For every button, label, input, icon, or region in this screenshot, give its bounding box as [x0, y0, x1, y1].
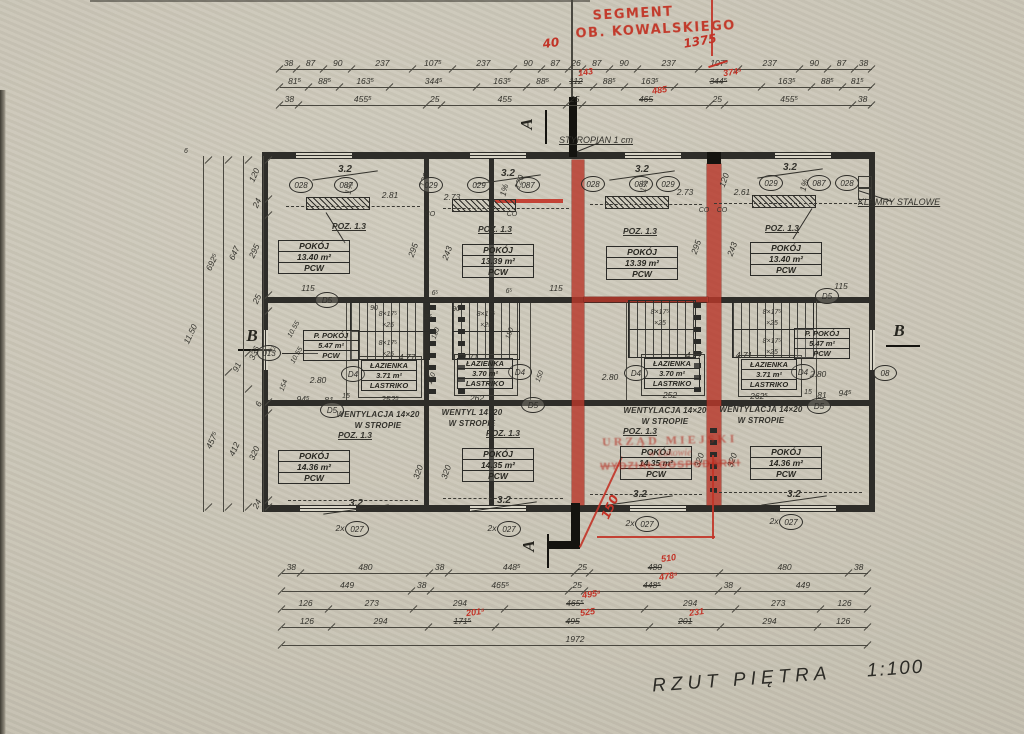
dim-segment: 294 — [332, 617, 429, 627]
section-line-a-bottom-foot — [549, 541, 580, 549]
dim-chain-top-3: 38455⁵254552546548525455⁵38 — [280, 90, 872, 106]
dim-segment: 25 — [710, 95, 726, 105]
text-label: 15 — [804, 389, 812, 396]
dim-segment: 273 — [329, 599, 414, 609]
text-label: 2.61 — [734, 187, 751, 197]
dim-segment: 120 — [249, 156, 263, 195]
room-label-box: POKÓJ13.39 m²PCW — [462, 244, 534, 278]
dim-label: 294 — [762, 616, 776, 626]
symbol-circle: 087 — [516, 177, 540, 193]
wall-cap — [707, 152, 721, 164]
text-label: WENTYL 14×20 — [442, 408, 503, 417]
section-a-tick — [545, 110, 547, 144]
room-label-line: 14.36 m² — [751, 457, 821, 468]
text-label: 2.73 — [677, 187, 694, 197]
dim-segment: 25 — [575, 563, 590, 573]
room-label-line: PCW — [279, 262, 349, 273]
sill-line — [443, 208, 569, 209]
dim-segment: 480 — [720, 563, 850, 573]
symbol-circle: 087 — [334, 177, 358, 193]
red-party-wall — [572, 160, 584, 505]
dim-label: 90 — [333, 58, 342, 68]
dim-segment: 38 — [412, 581, 431, 591]
partition — [530, 303, 531, 400]
dim-segment: 320 — [249, 409, 263, 496]
text-label: 15 — [342, 393, 350, 400]
room-label-box: POKÓJ13.40 m²PCW — [278, 240, 350, 274]
room-label-line: PCW — [751, 264, 821, 275]
symbol-circle: 027 — [345, 521, 369, 537]
text-label: 8×17⁵ — [379, 340, 398, 347]
dim-segment: 294 — [414, 599, 505, 609]
text-label: 3.2 — [783, 162, 797, 173]
dim-label: 448⁵ — [503, 562, 521, 572]
text-label: 320 — [411, 464, 425, 481]
dim-label: 465⁵ — [491, 580, 509, 590]
room-label-line: PCW — [751, 468, 821, 479]
dim-label: 87 — [837, 58, 846, 68]
dim-chain-top-2: 81⁵88⁵163⁵344⁵163⁵88⁵11214388⁵163⁵344⁵37… — [280, 72, 872, 88]
room-label-line: LASTRIKO — [742, 379, 796, 389]
dim-segment: 495525 — [496, 617, 650, 627]
dim-segment: 465485 — [583, 95, 710, 105]
text-label: 2.81 — [382, 190, 399, 200]
dim-label: 25 — [430, 94, 439, 104]
text-label: 94⁵ — [296, 394, 309, 404]
room-label-line: LASTRIKO — [645, 378, 699, 388]
dim-segment: 25 — [427, 95, 443, 105]
text-label: B — [893, 321, 904, 341]
dim-label: 87 — [550, 58, 559, 68]
dim-label: 90 — [619, 58, 628, 68]
dim-label: 320 — [246, 444, 261, 461]
dim-label: 465 — [639, 94, 653, 104]
text-label: 90 — [452, 306, 460, 313]
room-label-line: 13.40 m² — [751, 253, 821, 264]
text-label: CO — [507, 211, 518, 218]
text-label: 94⁵ — [838, 388, 851, 398]
dim-segment: 647 — [229, 156, 243, 349]
text-label: 6 — [184, 148, 188, 155]
dim-segment: 163⁵ — [625, 77, 675, 87]
room-label-line: 13.39 m² — [607, 257, 677, 268]
dim-label: 38 — [285, 94, 294, 104]
dim-chain-left-2: 64791412 — [228, 156, 244, 512]
text-label: 154 — [279, 379, 290, 392]
red-line — [597, 536, 715, 538]
room-label-line: LASTRIKO — [458, 378, 512, 388]
dim-segment: 237 — [453, 59, 515, 69]
dim-chain-left-total: 11.50 — [188, 156, 204, 512]
text-label: 2x — [488, 523, 497, 533]
dim-segment: 465⁵ — [431, 581, 569, 591]
room-label-line: POKÓJ — [751, 447, 821, 457]
dim-label: 480 — [358, 562, 372, 572]
text-label: 2.73 — [444, 192, 461, 202]
dim-segment: 448⁵ — [449, 563, 575, 573]
dim-segment: 107⁵ — [413, 59, 452, 69]
dim-label: 449 — [340, 580, 354, 590]
dim-segment: 171⁵201⁵ — [429, 617, 495, 627]
dim-correction-red: 485 — [652, 84, 668, 96]
symbol-circle: 029 — [656, 176, 680, 192]
dim-segment: 38 — [282, 563, 301, 573]
text-label: ×25 — [766, 349, 778, 356]
symbol-circle: 028 — [581, 176, 605, 192]
dim-label: 90 — [523, 58, 532, 68]
text-label: 8×17⁵ — [763, 309, 782, 316]
text-label: 252 — [663, 390, 677, 400]
text-label: 90 — [370, 305, 378, 312]
dim-segment: 237 — [352, 59, 414, 69]
text-label: WENTYLACJA 14×20 — [623, 406, 706, 415]
sill-line — [714, 203, 862, 204]
text-label: 150 — [535, 370, 546, 383]
dim-label: 412 — [226, 440, 241, 457]
dim-segment: 38 — [430, 563, 449, 573]
symbol-circle: 027 — [497, 521, 521, 537]
dim-label: 647 — [226, 244, 241, 261]
dim-label: 455 — [498, 94, 512, 104]
dim-label: 24 — [250, 498, 263, 511]
room-label-line: 14.35 m² — [463, 459, 533, 470]
text-label: W STROPIE — [642, 417, 689, 426]
dim-segment: 455⁵ — [725, 95, 853, 105]
paper-edge-shadow — [0, 90, 6, 734]
sill-line — [590, 204, 702, 205]
dim-segment: 81⁵ — [280, 77, 309, 87]
text-label: 295 — [689, 239, 703, 256]
dim-segment: 90 — [324, 59, 352, 69]
room-label-line: ŁAZIENKA — [362, 361, 416, 370]
text-label: 8×17⁵ — [763, 338, 782, 345]
dim-segment: 24 — [254, 195, 263, 211]
paper-edge-line — [90, 0, 590, 2]
dim-segment: 449 — [738, 581, 868, 591]
text-label: 252⁵ — [381, 394, 399, 404]
room-label-box: POKÓJ14.35 m²PCW — [462, 448, 534, 482]
symbol-circle: 08 — [873, 365, 897, 381]
dim-label: 38 — [287, 562, 296, 572]
room-label-line: PCW — [795, 348, 849, 358]
dim-segment: 24 — [254, 496, 263, 512]
dim-label: 107⁵ — [424, 58, 442, 68]
text-label: WENTYLACJA 14×20 — [719, 405, 802, 414]
text-label: 8×17⁵ — [651, 309, 670, 316]
dim-chain-bottom-1: 3848038448⁵2548051048038 — [282, 558, 868, 574]
dim-label: 1972 — [566, 634, 585, 644]
text-label: POZ. 1.3 — [486, 428, 520, 438]
dim-correction-red: 231 — [688, 606, 704, 618]
partition — [626, 301, 627, 400]
radiator — [752, 195, 816, 208]
dim-label: 87 — [306, 58, 315, 68]
dim-label: 24 — [250, 196, 263, 209]
symbol-circle: D5 — [315, 292, 339, 308]
dim-label: 87 — [592, 58, 601, 68]
text-label: W STROPIE — [355, 421, 402, 430]
text-label: POZ. 1.3 — [765, 223, 799, 233]
dim-correction-red: 495⁵ — [581, 588, 601, 601]
dim-label: 480 — [648, 562, 662, 572]
dim-segment: 38 — [849, 563, 868, 573]
dim-segment: 237 — [739, 59, 801, 69]
dim-label: 38 — [284, 58, 293, 68]
text-label: 2x — [770, 516, 779, 526]
dim-label: 38 — [854, 562, 863, 572]
dim-label: 295 — [246, 242, 261, 259]
dim-segment: 295 — [249, 211, 263, 292]
window — [630, 505, 686, 512]
text-label: 3.2 — [787, 489, 801, 500]
room-label-line: 3.70 m² — [645, 368, 699, 378]
dim-segment: 412 — [229, 385, 243, 512]
dim-segment: 480 — [301, 563, 431, 573]
room-label-line: P. POKÓJ — [795, 329, 849, 338]
radiator — [306, 197, 370, 210]
dim-label: 692⁵ — [204, 252, 221, 272]
dim-segment: 88⁵ — [594, 77, 625, 87]
text-label: CO — [425, 211, 436, 218]
window — [775, 152, 831, 159]
dim-segment: 163⁵ — [340, 77, 390, 87]
dim-segment: 457⁵ — [205, 368, 223, 512]
dim-segment: 6 — [258, 398, 263, 409]
symbol-circle: D5 — [815, 288, 839, 304]
symbol-circle: 029 — [419, 177, 443, 193]
text-label: 8×17⁵ — [379, 311, 398, 318]
text-label: A — [519, 540, 539, 551]
dim-segment: 88⁵ — [309, 77, 340, 87]
dim-segment: 38 — [280, 59, 297, 69]
steel-clamp-symbol — [858, 176, 872, 188]
text-label: 6⁵ — [432, 290, 439, 297]
symbol-circle: 013 — [257, 345, 281, 361]
text-label: B — [246, 326, 257, 346]
room-label-line: POKÓJ — [463, 245, 533, 255]
dim-segment: 87 — [828, 59, 855, 69]
room-label-line: 13.39 m² — [463, 255, 533, 266]
dim-label: 480 — [777, 562, 791, 572]
title-scale: 1:100 — [866, 657, 925, 682]
dim-segment: 25 — [254, 291, 263, 307]
text-label: 3.2 — [635, 164, 649, 175]
dim-label: 237 — [662, 58, 676, 68]
text-label: POZ. 1.3 — [623, 226, 657, 236]
dim-label: 38 — [859, 58, 868, 68]
dim-label: 237 — [375, 58, 389, 68]
dim-chain-bottom-4: 126294171⁵201⁵495525201231294126 — [282, 612, 868, 628]
dim-segment: 273 — [736, 599, 821, 609]
text-label: 2x — [336, 523, 345, 533]
text-label: 262⁵ — [750, 391, 768, 401]
dim-correction-red: 374⁵ — [722, 66, 742, 79]
section-line-a-top — [569, 97, 577, 157]
dim-segment: 692⁵ — [205, 156, 223, 368]
text-label: 3.2 — [349, 498, 363, 509]
symbol-circle: D5 — [521, 397, 545, 413]
room-label-line: ŁAZIENKA — [742, 360, 796, 369]
dim-segment: 201231 — [650, 617, 721, 627]
dim-label: 455⁵ — [354, 94, 372, 104]
dim-label: 126 — [836, 616, 850, 626]
symbol-circle: 028 — [835, 175, 859, 191]
dim-label: 88⁵ — [821, 76, 834, 86]
room-label-box: POKÓJ13.39 m²PCW — [606, 246, 678, 280]
room-label-line: POKÓJ — [463, 449, 533, 459]
dim-label: 11.50 — [182, 323, 200, 346]
dim-segment: 126 — [282, 617, 332, 627]
dim-label: 465⁵ — [566, 598, 584, 608]
symbol-circle: 029 — [759, 175, 783, 191]
dim-segment: 126 — [282, 599, 329, 609]
dim-label: 26 — [571, 58, 580, 68]
text-label: 115 — [301, 283, 315, 293]
dim-segment: 90 — [610, 59, 638, 69]
drawing-title: RZUT PIĘTRA 1:100 — [652, 657, 926, 698]
text-label: KLAMRY STALOWE — [858, 197, 940, 207]
dim-label: 38 — [417, 580, 426, 590]
text-label: 3.2 — [633, 489, 647, 500]
room-label-line: POKÓJ — [279, 241, 349, 251]
room-label-box: P. POKÓJ5.47 m²PCW — [303, 330, 359, 361]
room-label-box: ŁAZIENKA3.70 m²LASTRIKO — [644, 358, 700, 389]
dim-segment: 1972 — [282, 635, 868, 645]
dim-segment: 38 — [719, 581, 738, 591]
symbol-circle: 087 — [807, 175, 831, 191]
dim-label: 38 — [435, 562, 444, 572]
dim-label: 25 — [570, 94, 579, 104]
dim-segment: 480510 — [590, 563, 720, 573]
window — [780, 505, 836, 512]
dim-label: 495 — [566, 616, 580, 626]
dim-segment: 91 — [234, 349, 243, 385]
text-label: 2.80 — [602, 372, 619, 382]
dim-label: 163⁵ — [356, 76, 374, 86]
dim-segment: 126 — [818, 617, 868, 627]
room-label-line: ŁAZIENKA — [458, 359, 512, 368]
title-text: RZUT PIĘTRA — [652, 663, 832, 696]
dim-label: 237 — [476, 58, 490, 68]
symbol-circle: D5 — [807, 398, 831, 414]
dim-segment: 344⁵ — [390, 77, 477, 87]
text-label: CO — [717, 207, 728, 214]
symbol-circle: 028 — [289, 177, 313, 193]
dim-label: 120 — [246, 167, 261, 184]
text-label: CO — [699, 207, 710, 214]
dim-label: 449 — [796, 580, 810, 590]
dim-label: 163⁵ — [778, 76, 796, 86]
dim-segment: 38 — [855, 59, 872, 69]
symbol-circle: 029 — [467, 177, 491, 193]
dim-label: 455⁵ — [780, 94, 798, 104]
text-label: ×25 — [654, 320, 666, 327]
text-label: 2.80 — [310, 375, 327, 385]
room-label-line: PCW — [279, 472, 349, 483]
dim-label: 237 — [763, 58, 777, 68]
text-label: POZ. 1.3 — [478, 224, 512, 234]
dim-chain-left-3: 692⁵457⁵ — [208, 156, 224, 512]
dim-correction-red: 201⁵ — [465, 606, 485, 619]
window — [869, 330, 875, 370]
text-label: 6⁵ — [506, 288, 513, 295]
office-stamp: URZĄD MIEJSKI w Łukowie WYDZIAŁ GOSPODAR… — [585, 431, 756, 473]
dim-label: 294 — [373, 616, 387, 626]
symbol-circle: D5 — [320, 402, 344, 418]
dim-label: 25 — [578, 562, 587, 572]
dim-label: 38 — [858, 94, 867, 104]
dim-label: 6 — [253, 399, 264, 408]
dim-chain-bottom-total: 1972 — [282, 630, 868, 646]
room-label-line: 5.47 m² — [795, 338, 849, 348]
dim-segment: 449 — [282, 581, 412, 591]
dim-segment: 163⁵ — [762, 77, 812, 87]
room-label-line: 14.36 m² — [279, 461, 349, 472]
dim-segment: 455⁵ — [299, 95, 427, 105]
dim-segment: 294 — [721, 617, 818, 627]
dim-label: 25 — [250, 293, 263, 306]
text-label: 243 — [440, 245, 454, 262]
room-label-line: 5.47 m² — [304, 340, 358, 350]
room-label-line: PCW — [607, 268, 677, 279]
dim-label: 91 — [230, 361, 243, 374]
dim-label: 38 — [724, 580, 733, 590]
text-label: STYROPIAN 1 cm — [559, 135, 633, 145]
dim-label: 163⁵ — [493, 76, 511, 86]
text-label: 243 — [725, 241, 739, 258]
room-label-box: POKÓJ14.36 m²PCW — [750, 446, 822, 480]
dim-label: 344⁵ — [425, 76, 443, 86]
text-label: 40 — [542, 35, 560, 51]
text-label: 3.2 — [497, 495, 511, 506]
dim-segment: 11.50 — [182, 156, 203, 512]
dim-label: 126 — [300, 616, 314, 626]
room-label-box: POKÓJ13.40 m²PCW — [750, 242, 822, 276]
dim-correction-red: 478⁵ — [658, 570, 678, 583]
text-label: POZ. 1.3 — [338, 430, 372, 440]
dim-segment: 163⁵ — [477, 77, 527, 87]
room-label-line: POKÓJ — [751, 243, 821, 253]
dim-segment: 90 — [514, 59, 542, 69]
dim-segment: 38 — [853, 95, 872, 105]
window — [625, 152, 681, 159]
text-label: ×25 — [480, 322, 492, 329]
text-label: 295 — [406, 242, 420, 259]
dim-segment: 88⁵ — [812, 77, 843, 87]
text-label: 1% — [498, 183, 511, 197]
text-label: 115 — [834, 281, 848, 291]
dim-chain-top-1: 388790237107⁵2379087268790237107⁵2379087… — [280, 54, 872, 70]
section-b-arrow — [886, 345, 920, 347]
dim-segment: 344⁵374⁵ — [675, 77, 762, 87]
dim-segment: 25 — [567, 95, 583, 105]
text-label: A — [517, 118, 537, 129]
dim-segment: 38 — [280, 95, 299, 105]
room-label-box: ŁAZIENKA3.70 m²LASTRIKO — [457, 358, 513, 389]
dim-label: 25 — [572, 580, 581, 590]
room-label-line: 13.40 m² — [279, 251, 349, 262]
room-label-line: 3.71 m² — [362, 370, 416, 380]
dim-label: 126 — [837, 598, 851, 608]
room-label-line: ŁAZIENKA — [645, 359, 699, 368]
room-label-line: POKÓJ — [607, 247, 677, 257]
text-label: W STROPIE — [449, 419, 496, 428]
dim-label: 90 — [810, 58, 819, 68]
dim-correction-red: 525 — [580, 606, 596, 618]
dim-label: 273 — [365, 598, 379, 608]
dim-label: 107⁵ — [710, 58, 728, 68]
dim-correction-red: 143 — [577, 66, 593, 78]
